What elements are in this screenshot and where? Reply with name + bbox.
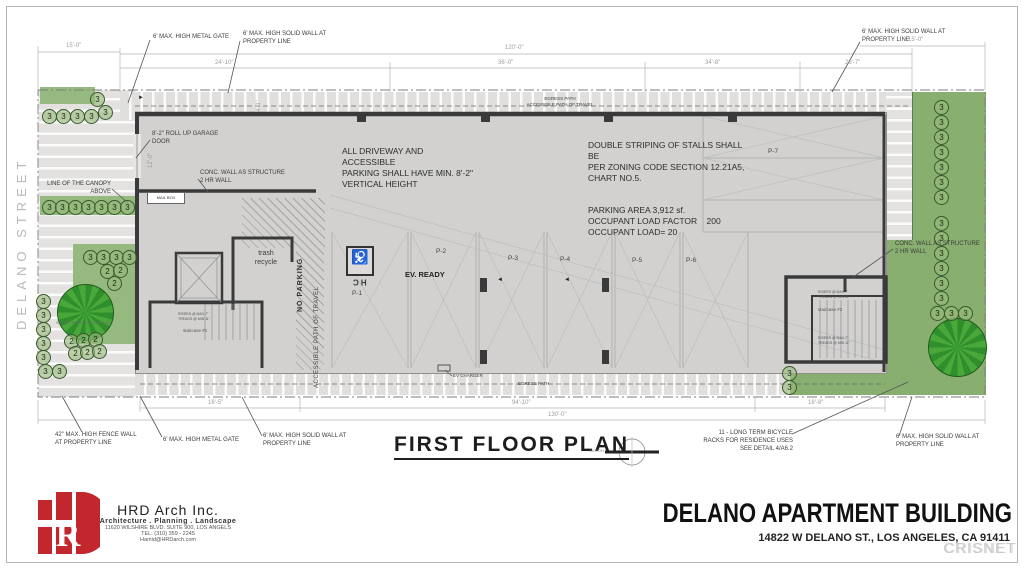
plant-marker: 3 <box>930 306 945 321</box>
plant-marker: 3 <box>934 100 949 115</box>
column <box>728 112 737 122</box>
plant-marker: 3 <box>38 364 53 379</box>
plant-marker: 3 <box>98 105 113 120</box>
plant-marker: 3 <box>934 145 949 160</box>
label-trash-recycle: trash recycle <box>246 249 286 267</box>
plant-marker: 3 <box>934 216 949 231</box>
dim-bottom-mid: 94'-10" <box>512 400 531 406</box>
elevator-and-stairs <box>177 254 876 358</box>
watermark: CRISNET <box>943 540 1016 557</box>
floor-plan-sheet: 3 3 3 3 3 3 3 3 3 3 3 3 3 3 3 3 3 2 2 2 … <box>0 0 1024 569</box>
firm-tagline: Architecture . Planning . Landscape <box>88 518 248 525</box>
plant-marker: 2 <box>92 344 107 359</box>
column <box>357 112 366 122</box>
label-stair2-note-upper: RISERS @ MAX 7" TREADS @ MIN 11" <box>818 290 850 299</box>
stall-label-p7: P-7 <box>768 148 778 155</box>
plant-marker: 3 <box>70 109 85 124</box>
plant-marker: 3 <box>36 336 51 351</box>
label-stair2-note-lower: RISERS @ MAX 7" TREADS @ MIN 11" <box>818 336 850 345</box>
svg-text:R: R <box>56 517 81 554</box>
stall-label-p6: P-6 <box>686 257 696 264</box>
plant-marker: 3 <box>934 115 949 130</box>
note-parking-area: PARKING AREA 3,912 sf. OCCUPANT LOAD FAC… <box>588 205 753 238</box>
label-no-parking: NO PARKING <box>296 248 305 312</box>
plant-marker: 3 <box>934 276 949 291</box>
note-striping: DOUBLE STRIPING OF STALLS SHALL BE PER Z… <box>588 140 753 184</box>
dim-top-left: 15'-0" <box>66 43 81 49</box>
column <box>480 350 487 364</box>
plant-marker: 3 <box>42 109 57 124</box>
street-name: DELANO STREET <box>14 157 29 330</box>
label-mail-box: MAIL BOX <box>147 192 185 204</box>
note-solid-wall-top-right: 6' MAX. HIGH SOLID WALL AT PROPERTY LINE <box>862 29 945 45</box>
dim-seg3: 34'-8" <box>705 60 720 66</box>
plant-marker: 3 <box>934 261 949 276</box>
ev-charger-icon <box>438 365 450 371</box>
drive-arrow-icon: ◄ <box>564 277 570 283</box>
column <box>602 278 609 292</box>
note-solid-wall-top: 6' MAX. HIGH SOLID WALL AT PROPERTY LINE <box>243 31 326 47</box>
plant-marker: 2 <box>107 276 122 291</box>
stall-label-p3: P-3 <box>508 255 518 262</box>
note-canopy: LINE OF THE CANOPY ABOVE <box>45 181 111 197</box>
note-metal-gate-bottom: 6' MAX. HIGH METAL GATE <box>163 437 239 445</box>
plan-linework <box>0 0 1024 569</box>
stall-label-p4: P-4 <box>560 256 570 263</box>
plant-marker: 3 <box>944 306 959 321</box>
plant-marker: 3 <box>934 130 949 145</box>
label-ev-ready: EV. READY <box>405 270 445 280</box>
egress-dashed-lines <box>135 106 910 384</box>
note-conc-wall-right: CONC. WALL AS STRUCTURE 2 HR WALL <box>895 241 980 257</box>
plant-marker: 3 <box>84 109 99 124</box>
plan-title: FIRST FLOOR PLAN <box>394 433 629 460</box>
gate-arrow-icon: ► <box>138 95 144 101</box>
plant-marker: 3 <box>90 92 105 107</box>
plant-marker: 3 <box>120 200 135 215</box>
garage-door-opening <box>133 134 141 178</box>
label-staircase-1: staircase #1 <box>183 328 207 334</box>
note-garage-door: 8'-2" ROLL UP GARAGE DOOR <box>152 131 218 147</box>
plant-marker: 3 <box>958 306 973 321</box>
label-hc: HC <box>351 276 367 286</box>
dim-overall-top: 120'-0" <box>505 45 524 51</box>
label-egress-bottom: EGRESS PATH <box>518 381 549 387</box>
note-fence-wall-bottom: 42" MAX. HIGH FENCE WALL AT PROPERTY LIN… <box>55 432 137 448</box>
stall-label-p5: P-5 <box>632 257 642 264</box>
tree-icon-right <box>928 318 987 377</box>
project-title: DELANO APARTMENT BUILDING <box>663 498 1012 529</box>
column <box>480 278 487 292</box>
note-metal-gate-top: 6' MAX. HIGH METAL GATE <box>153 34 229 42</box>
note-bike-rack: 11 - LONG TERM BICYCLE RACKS FOR RESIDEN… <box>688 430 793 453</box>
north-label: NORTH <box>590 448 604 453</box>
drive-arrow-icon: ◄ <box>497 277 503 283</box>
firm-name: HRD Arch Inc. <box>88 502 248 518</box>
plant-marker: 3 <box>56 109 71 124</box>
note-solid-wall-bottom-right: 6' MAX. HIGH SOLID WALL AT PROPERTY LINE <box>896 434 979 450</box>
column <box>481 112 490 122</box>
label-staircase-2: staircase #2 <box>818 307 842 313</box>
dim-overall-bottom: 130'-0" <box>548 412 567 418</box>
stall-label-p1: P-1 <box>352 290 362 297</box>
firm-email: Hamid@HRDarch.com <box>88 537 248 543</box>
plant-marker: 3 <box>934 175 949 190</box>
label-egress-top: EGRESS PATH ACCESSIBLE PATH OF TRAVEL <box>505 96 615 108</box>
plant-marker: 3 <box>122 250 137 265</box>
dim-bottom-right: 18'-8" <box>808 400 823 406</box>
column <box>604 112 613 122</box>
plant-marker: 3 <box>934 291 949 306</box>
note-conc-wall-left: CONC. WALL AS STRUCTURE 2 HR WALL <box>200 170 285 186</box>
plant-marker: 3 <box>36 322 51 337</box>
wheelchair-icon: ♿ <box>351 248 368 265</box>
label-accessible-path: ACCESSIBLE PATH OF TRAVEL <box>314 238 322 388</box>
stall-label-p2: P-2 <box>436 248 446 255</box>
firm-block: HRD Arch Inc. Architecture . Planning . … <box>88 502 248 543</box>
plant-marker: 3 <box>782 380 797 395</box>
hc-stall-sign: ♿ <box>346 246 374 276</box>
plant-marker: 3 <box>934 190 949 205</box>
label-ev-charger: EV CHARGER <box>453 373 483 379</box>
dim-top-right: 15'-0" <box>908 37 923 43</box>
plant-marker: 3 <box>36 350 51 365</box>
note-driveway: ALL DRIVEWAY AND ACCESSIBLE PARKING SHAL… <box>342 146 477 190</box>
note-short-bike-rack: SHORT TERM BICYCLE RACK <box>56 320 116 325</box>
plant-marker: 3 <box>36 308 51 323</box>
plant-marker: 3 <box>52 364 67 379</box>
dim-seg4: 26'-7" <box>845 60 860 66</box>
plant-marker: 3 <box>782 366 797 381</box>
note-solid-wall-bottom: 6' MAX. HIGH SOLID WALL AT PROPERTY LINE <box>263 433 346 449</box>
plant-marker: 3 <box>934 160 949 175</box>
dim-door-width: 12'-0" <box>148 153 154 168</box>
column <box>602 350 609 364</box>
dim-walk-width: 4'-1" <box>256 100 262 112</box>
label-stair1-note: RISERS @ MAX 7" TREADS @ MIN 11" <box>178 312 210 321</box>
dim-bottom-left: 16'-5" <box>208 400 223 406</box>
plant-marker: 3 <box>36 294 51 309</box>
dim-seg1: 24'-10" <box>215 60 234 66</box>
dim-seg2: 36'-0" <box>498 60 513 66</box>
